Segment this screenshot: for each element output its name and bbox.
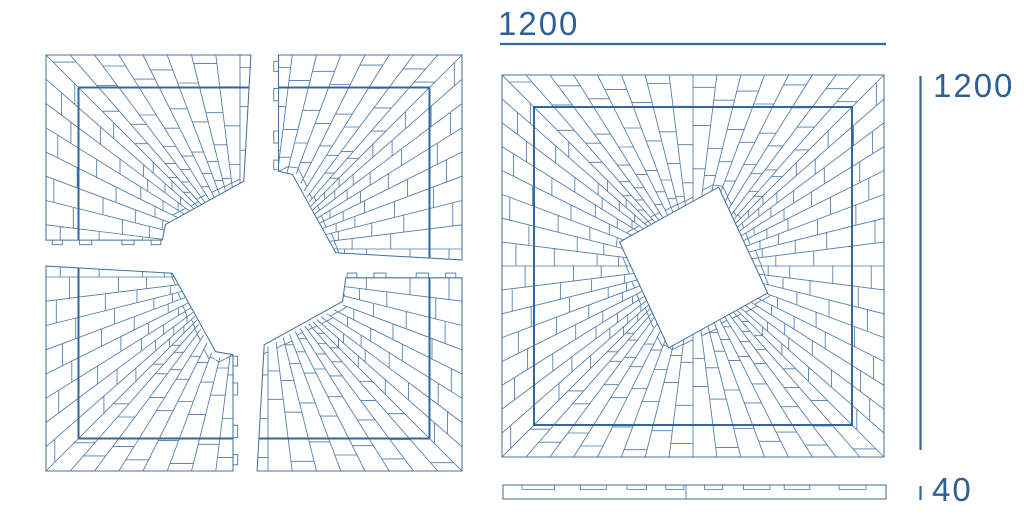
svg-text:1200: 1200 (498, 5, 579, 42)
svg-text:40: 40 (932, 471, 973, 508)
svg-text:1200: 1200 (933, 67, 1014, 104)
